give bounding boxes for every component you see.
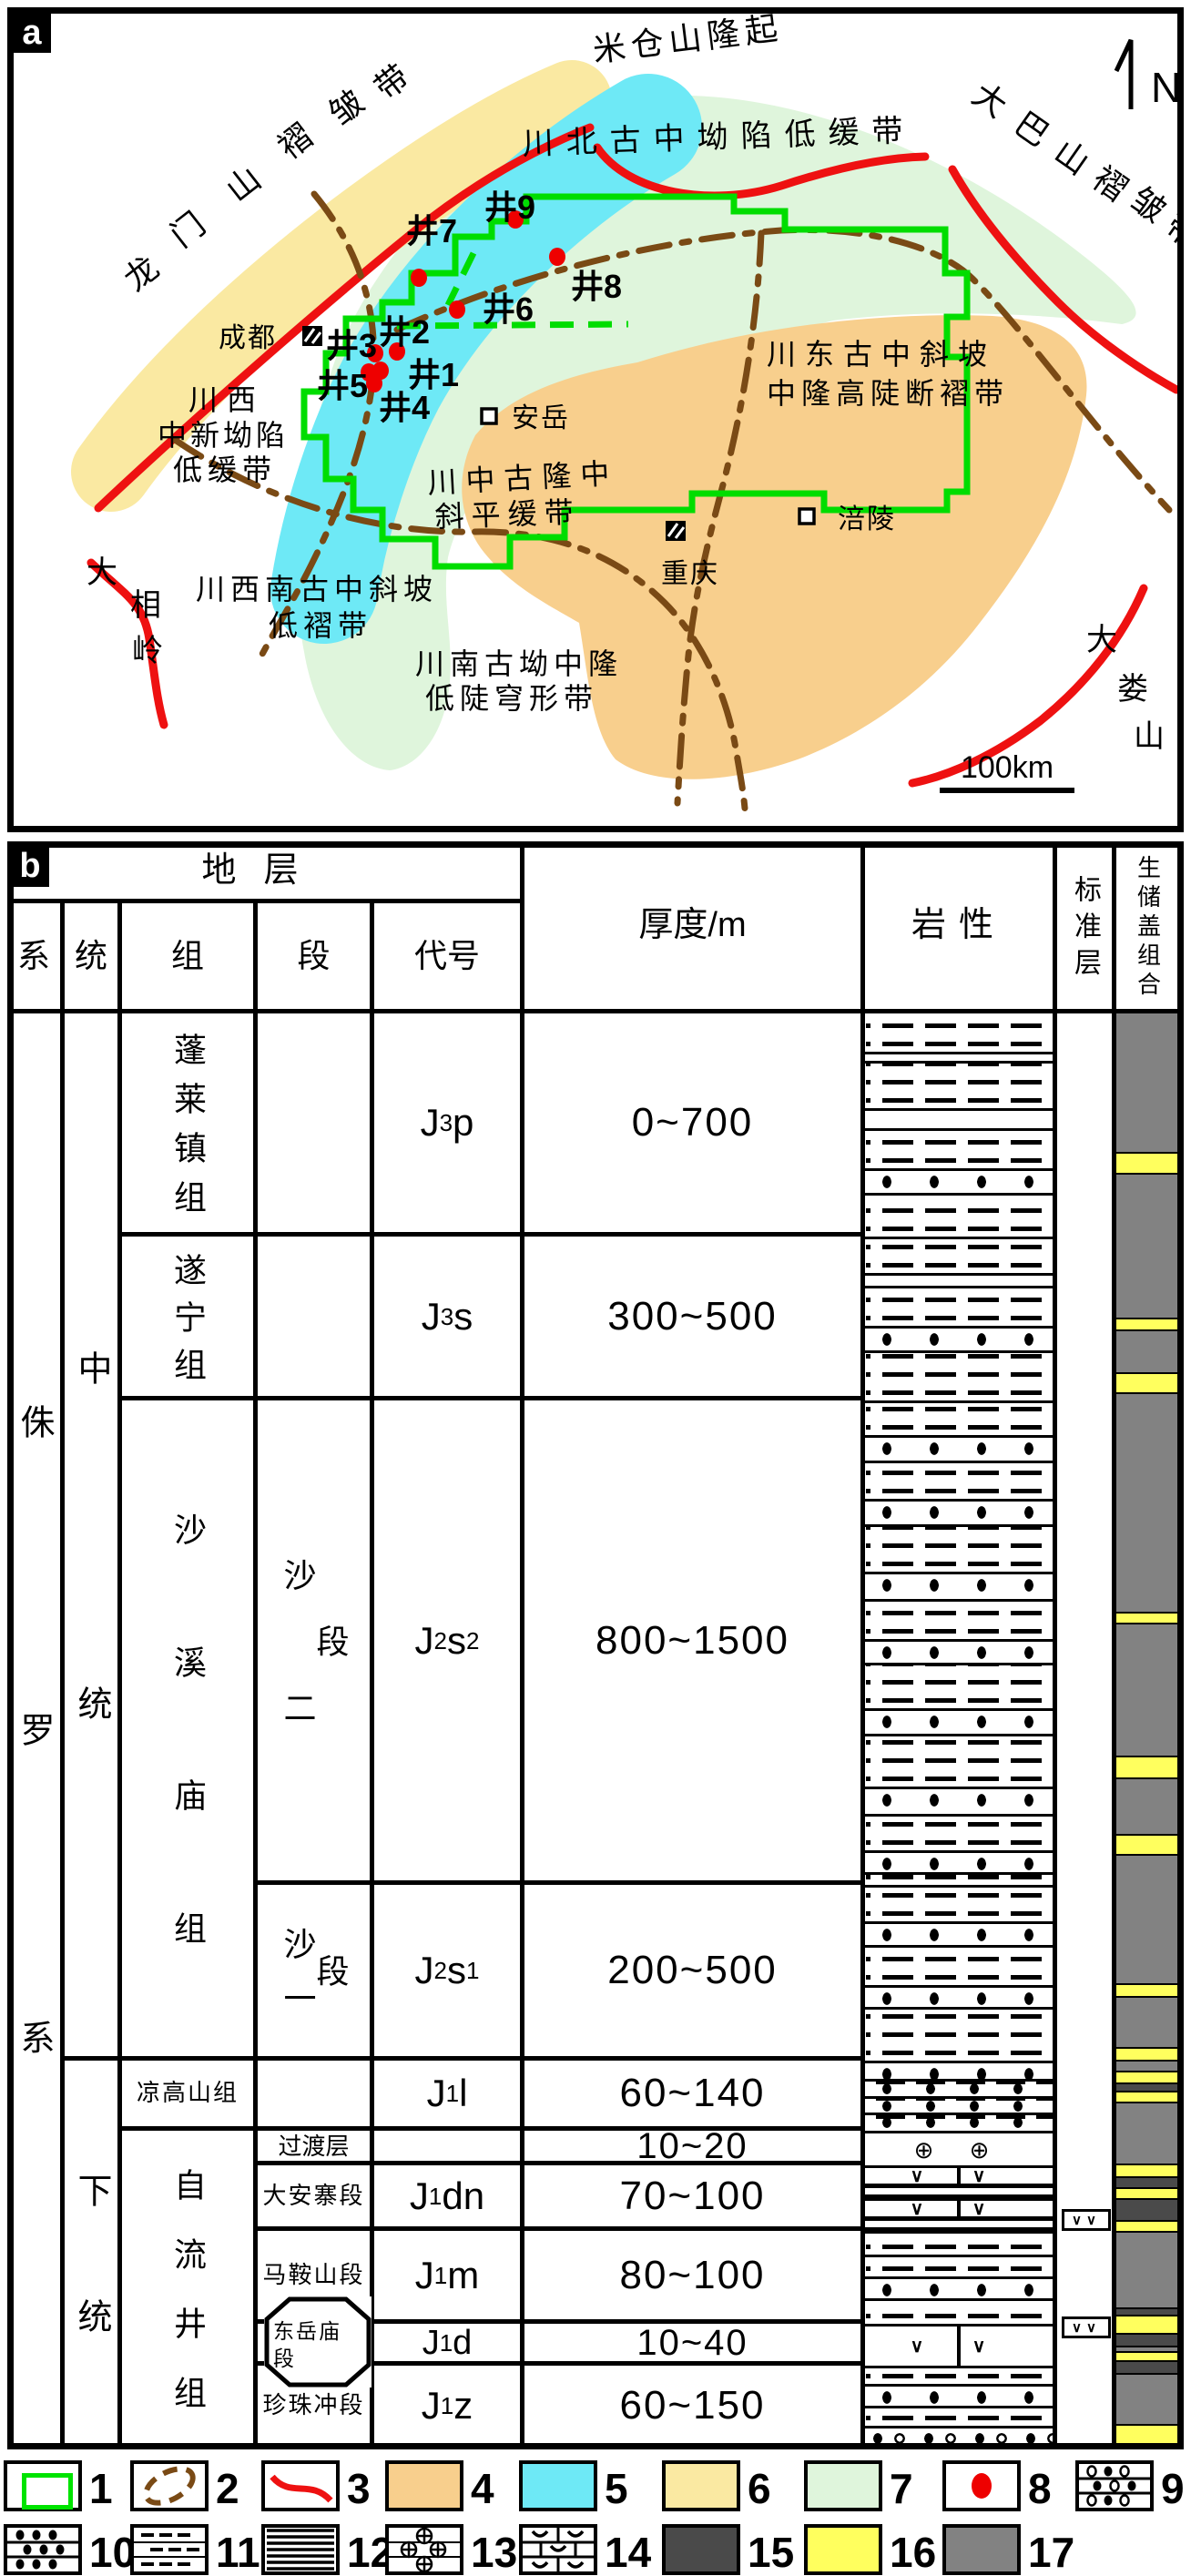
legend-swatch-pat-sandstone [4,2524,82,2575]
label-longmenshan: 带 [367,57,416,107]
cell-transition-layer: 过渡层 [258,2131,374,2165]
cell-middle-series: 中统 [65,1013,122,2061]
assemblage-seg-y [1116,1318,1179,1329]
lithology-band-s [865,2384,1053,2406]
legend-swatch-structure-ellipse [130,2460,209,2511]
lithology-band-m [865,2231,1053,2255]
well-label-井4: 井4 [379,389,430,426]
cell-shaximiao-fm: 沙溪庙组 [122,1400,258,2061]
well-dot [549,248,565,266]
src-res-cap-column [1116,1013,1184,2449]
assemblage-seg-g [1116,1777,1179,1834]
legend-swatch-fill-paleyellow [662,2460,740,2511]
header-member: 段 [258,903,374,1013]
lithology-band-x [865,2113,1053,2131]
header-system: 系 [7,903,65,1013]
cell-code-j1l: J1l [374,2061,524,2131]
label-chuanxi-1: 川西 [188,383,265,416]
label-longmenshan: 龙 [117,249,166,298]
cell-code-j1m: J1m [374,2231,524,2324]
legend-number-17: 17 [1028,2528,1074,2576]
city-label-涪陵: 涪陵 [838,504,896,535]
lithology-band-l: ∨ ∨ [865,2324,1053,2366]
cell-sha1-member: 沙一段 [258,1885,374,2061]
well-label-井9: 井9 [484,188,535,226]
legend-number-2: 2 [216,2464,239,2513]
well-label-井2: 井2 [379,313,430,351]
figure-page: 米仓山隆起川北古中坳陷低缓带川东古中斜坡中隆高陡断褶带川中古隆中斜平缓带川西中新… [0,0,1191,2576]
assemblage-seg-d [1116,2307,1179,2315]
well-label-井6: 井6 [483,290,534,328]
assemblage-seg-y [1116,2220,1179,2231]
legend-swatch-pat-shell [519,2524,597,2575]
header-formation: 组 [122,903,258,1013]
lithology-band-s [865,2061,1053,2079]
legend-number-5: 5 [605,2464,628,2513]
scale-label: 100km [961,750,1054,785]
cell-thickness-j1l: 60~140 [524,2061,865,2131]
well-label-井3: 井3 [326,327,377,364]
legend-swatch-fill-orange [385,2460,463,2511]
lithology-column: ⊕ ⊕∨ ∨∨ ∨∨ ∨ [865,1013,1057,2449]
lithology-band-s [865,1639,1053,1663]
lithology-band-m [865,1193,1053,1237]
dongyuemiao-label: 东岳庙段 [273,2318,362,2373]
lithology-band-b [865,1052,1053,1061]
legend-swatch-fill-palegreen [804,2460,882,2511]
lithology-band-m [865,1945,1053,1985]
cell-thickness-j1d: 10~40 [524,2324,865,2366]
label-longmenshan: 门 [163,205,212,254]
legend-number-14: 14 [605,2528,651,2576]
lithology-band-m [865,1663,1053,1708]
assemblage-seg-y [1116,1756,1179,1777]
lithology-band-b [865,1273,1053,1286]
header-code: 代号 [374,903,524,1013]
cell-code-j1z: J1z [374,2366,524,2449]
lithology-band-sh [865,2184,1053,2198]
cell-thickness-j3s: 300~500 [524,1237,865,1400]
legend-swatch-pat-fossil [385,2524,463,2575]
assemblage-seg-y [1116,2351,1179,2360]
assemblage-seg-y [1116,2424,1179,2447]
study-area-swatch-icon [22,2473,73,2510]
label-dabashan: 山 [1048,133,1096,182]
assemblage-seg-y [1116,2091,1179,2102]
assemblage-seg-d [1116,2176,1179,2187]
header-stratum: 地层 [7,841,524,903]
cell-lianggaoshan-fm: 凉高山组 [122,2061,258,2131]
legend-number-16: 16 [890,2528,936,2576]
header-marker-bed: 标准层 [1057,841,1116,1013]
legend-number-10: 10 [89,2528,136,2576]
assemblage-seg-d [1116,2198,1179,2220]
assemblage-seg-g [1116,1392,1179,1612]
legend-swatch-fill-cyan [519,2460,597,2511]
legend-swatch-well [942,2460,1021,2511]
label-chuandong-1: 川东古中斜坡 [767,338,996,371]
sichuan-basin-map: 米仓山隆起川北古中坳陷低缓带川东古中斜坡中隆高陡断褶带川中古隆中斜平缓带川西中新… [7,7,1184,832]
city-marker-open [799,509,814,524]
well-label-井5: 井5 [317,367,368,404]
lithology-band-m [865,1461,1053,1499]
lithology-band-s [865,1921,1053,1945]
assemblage-seg-d [1116,2333,1179,2346]
label-dabashan: 皱 [1125,180,1173,229]
cell-code-j3s: J3s [374,1237,524,1400]
city-label-重庆: 重庆 [661,559,719,589]
lithology-band-m [865,1872,1053,1885]
north-label: N [1151,64,1181,111]
assemblage-seg-y [1116,2187,1179,2198]
lithology-band-m [865,2298,1053,2324]
lithology-band-m [865,1061,1053,1108]
lithology-band-m [865,2255,1053,2276]
lithology-band-sh [865,2216,1053,2231]
label-longmenshan: 褶 [270,117,320,166]
legend-swatch-fault-line [261,2460,340,2511]
cell-thickness-j3p: 0~700 [524,1013,865,1237]
lithology-band-s [865,2276,1053,2298]
cell-ziliujing-fm: 自流井组 [122,2131,258,2449]
legend-swatch-fill-yellow [804,2524,882,2575]
cell-sha2-member: 沙二段 [258,1400,374,1885]
lithology-band-m [865,1350,1053,1400]
assemblage-seg-g [1116,1623,1179,1756]
legend-number-11: 11 [216,2528,260,2576]
label-chuandong-2: 中隆高陡断褶带 [767,377,1009,410]
legend-number-8: 8 [1028,2464,1052,2513]
marker-bed-column [1057,1013,1116,2449]
lithology-band-m [865,1599,1053,1639]
well-label-井1: 井1 [408,356,459,393]
legend-number-6: 6 [748,2464,771,2513]
marker-bed-symbol: ∨∨ [1062,2316,1111,2338]
lithology-band-m [865,1128,1053,1168]
assemblage-seg-g [1116,1013,1179,1152]
legend-number-7: 7 [890,2464,913,2513]
legend-swatch-pat-glutenite [1075,2460,1154,2511]
header-series: 统 [65,903,122,1013]
well-label-井8: 井8 [571,268,622,305]
legend-number-4: 4 [471,2464,494,2513]
lithology-band-m [865,2366,1053,2384]
city-label-安岳: 安岳 [512,403,570,433]
legend-number-13: 13 [471,2528,517,2576]
cell-thickness-j2s2: 800~1500 [524,1400,865,1885]
lithology-band-o [865,2426,1053,2447]
lithology-band-m [865,1013,1053,1052]
cell-code-j2s2: J2s2 [374,1400,524,1885]
lithology-band-m [865,1286,1053,1326]
lithology-band-m [865,1734,1053,1787]
assemblage-seg-d [1116,2082,1179,2091]
dongyuemiao-octagon: 东岳庙段 [264,2296,372,2388]
assemblage-seg-y [1116,1834,1179,1854]
lithology-band-m [865,1400,1053,1435]
lithology-band-s [865,1985,1053,2007]
city-label-成都: 成都 [219,323,277,353]
assemblage-seg-g [1116,2373,1179,2424]
label-daloushan: 山 [1134,719,1165,754]
label-chuanxi-3: 低缓带 [173,453,277,486]
assemblage-seg-g [1116,1854,1179,1983]
lithology-band-m [865,1524,1053,1572]
lithology-band-s [865,1708,1053,1734]
lithology-band-s [865,1850,1053,1872]
lithology-band-s [865,1787,1053,1814]
lithology-band-m [865,1885,1053,1921]
assemblage-seg-y [1116,2164,1179,2176]
legend-number-3: 3 [347,2464,371,2513]
cell-thickness-j2s1: 200~500 [524,1885,865,2061]
map-panel: 米仓山隆起川北古中坳陷低缓带川东古中斜坡中隆高陡断褶带川中古隆中斜平缓带川西中新… [7,7,1184,832]
lithology-band-s [865,1435,1053,1461]
cell-code-empty [374,2131,524,2165]
label-chuanxinan-2: 低褶带 [269,609,372,642]
well-label-井7: 井7 [406,212,457,249]
legend-number-1: 1 [89,2464,113,2513]
lithology-band-l: ∨ ∨ [865,2198,1053,2216]
panel-b-badge: b [11,845,49,887]
label-dabashan: 褶 [1086,159,1135,209]
assemblage-seg-g [1116,2231,1179,2307]
city-marker-open [482,409,496,423]
panel-a-badge: a [13,13,51,53]
assemblage-seg-y [1116,2071,1179,2082]
label-chuanxinan-1: 川西南古中斜坡 [196,573,438,606]
lithology-band-m [865,2406,1053,2426]
label-chuanzhong-2: 斜平缓带 [434,495,581,534]
label-daloushan: 娄 [1117,672,1148,707]
lithology-band-s [865,1326,1053,1350]
marker-bed-symbol: ∨∨ [1062,2209,1111,2231]
legend-swatch-fill-gray [942,2524,1021,2575]
label-dabashan: 大 [966,76,1014,125]
label-longmenshan: 山 [219,159,268,209]
cell-penglaizhen-fm: 蓬莱镇组 [122,1013,258,1237]
cell-thickness-j1z: 60~150 [524,2366,865,2449]
cell-code-j1dn: J1dn [374,2165,524,2231]
legend-swatch-pat-shale [261,2524,340,2575]
cell-member-empty-2 [258,1237,374,1400]
label-micangshan: 米仓山隆起 [591,8,785,68]
lithology-band-s [865,1572,1053,1599]
legend-swatch-fill-darkgray [662,2524,740,2575]
assemblage-seg-y [1116,1983,1179,1996]
cell-jurassic-system: 侏罗系 [7,1013,65,2449]
cell-suining-fm: 遂宁组 [122,1237,258,1400]
label-daxiangling: 岭 [132,634,163,668]
cell-code-j1d: J1d [374,2324,524,2366]
header-src-res-cap: 生储盖组合 [1116,841,1184,1013]
lithology-band-s [865,1499,1053,1524]
lithology-band-l: ∨ ∨ [865,2165,1053,2184]
header-lithology: 岩性 [865,841,1057,1013]
assemblage-seg-g [1116,1173,1179,1318]
label-daxiangling: 大 [87,555,117,590]
label-dabashan: 带 [1159,207,1184,256]
lithology-band-m [865,1814,1053,1850]
header-thickness: 厚度/m [524,841,865,1013]
assemblage-seg-y [1116,1372,1179,1392]
cell-member-empty-3 [258,2061,374,2131]
legend-number-15: 15 [748,2528,794,2576]
cell-code-j2s1: J2s1 [374,1885,524,2061]
label-chuanxi-2: 中新坳陷 [158,419,289,452]
cell-thickness-guodu: 10~20 [524,2131,865,2165]
legend-swatch-pat-mudstone [130,2524,209,2575]
assemblage-seg-g [1116,1329,1179,1372]
legend-number-9: 9 [1161,2464,1185,2513]
lithology-band-x [865,2096,1053,2113]
lithology-band-f: ⊕ ⊕ [865,2131,1053,2165]
label-longmenshan: 皱 [321,83,371,132]
label-daxiangling: 相 [130,588,161,623]
label-chuannan-2: 低陡穹形带 [425,682,598,715]
label-chuannan-1: 川南古坳中隆 [415,647,623,680]
assemblage-seg-y [1116,1152,1179,1173]
label-daloushan: 大 [1086,623,1117,657]
label-dabashan: 巴 [1008,105,1056,154]
well-dot [411,269,427,287]
lithology-band-m [865,2007,1053,2061]
assemblage-seg-y [1116,2315,1179,2333]
cell-lower-series: 下统 [65,2061,122,2449]
assemblage-seg-y [1116,2047,1179,2060]
cell-thickness-j1m: 80~100 [524,2231,865,2324]
cell-daanzhai-member: 大安寨段 [258,2165,374,2231]
assemblage-seg-d [1116,2360,1179,2373]
cell-code-j3p: J3p [374,1013,524,1237]
cell-thickness-j1dn: 70~100 [524,2165,865,2231]
cell-member-empty-1 [258,1013,374,1237]
assemblage-seg-y [1116,1612,1179,1623]
assemblage-seg-g [1116,1996,1179,2047]
lithology-band-b [865,1108,1053,1128]
assemblage-seg-g [1116,2102,1179,2164]
north-arrow-icon [1116,40,1131,109]
lithology-band-x [865,2079,1053,2096]
legend-swatch-study-area [4,2460,82,2511]
lithology-band-m [865,1237,1053,1273]
lithology-band-s [865,1168,1053,1193]
well-dot [449,300,465,319]
assemblage-seg-g [1116,2060,1179,2071]
